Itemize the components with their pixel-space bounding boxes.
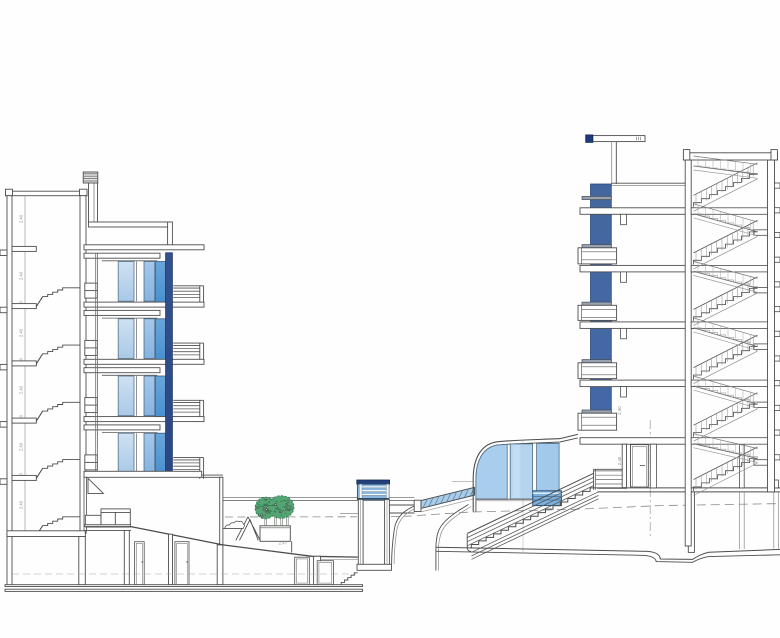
svg-text:2.40: 2.40 bbox=[18, 271, 23, 280]
svg-text:2.40: 2.40 bbox=[617, 406, 622, 415]
svg-text:2.40: 2.40 bbox=[18, 328, 23, 337]
svg-text:2.40: 2.40 bbox=[18, 500, 23, 509]
svg-text:2.40: 2.40 bbox=[18, 214, 23, 223]
svg-text:2.40: 2.40 bbox=[18, 442, 23, 451]
svg-text:2.40: 2.40 bbox=[18, 385, 23, 394]
svg-text:2.40: 2.40 bbox=[617, 456, 622, 465]
svg-text:2.47: 2.47 bbox=[279, 541, 288, 546]
